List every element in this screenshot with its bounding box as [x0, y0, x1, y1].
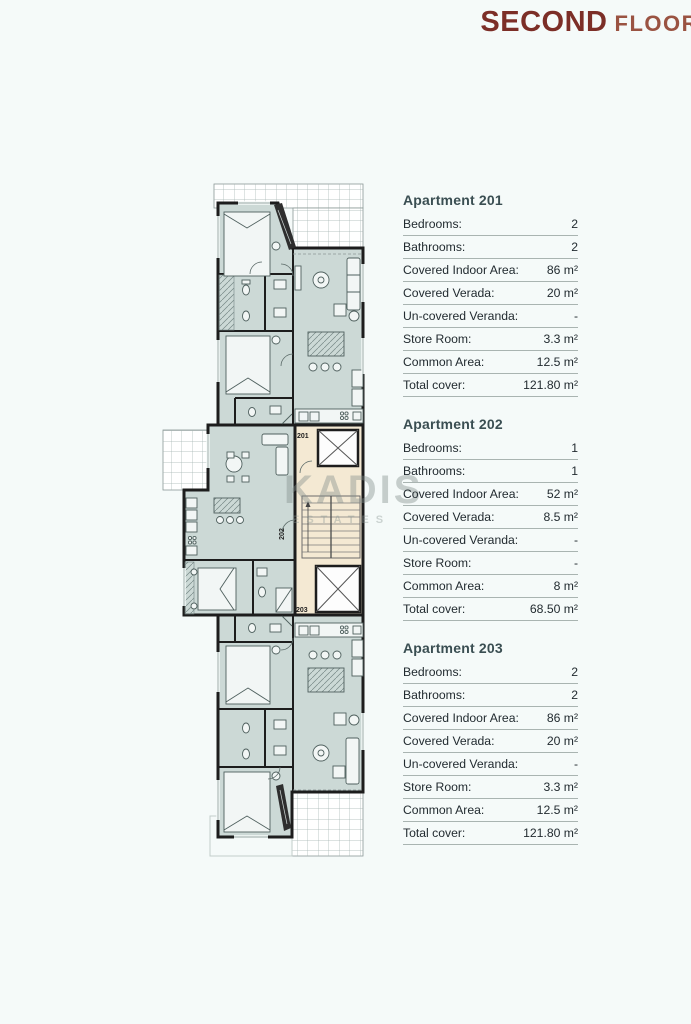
page-title: SECONDFLOOR — [480, 6, 691, 39]
floor-title-primary: SECOND — [480, 6, 607, 38]
table-row: Bedrooms:2 — [403, 213, 578, 236]
spec-value: 2 — [571, 240, 578, 254]
spec-value: 12.5 m² — [537, 355, 578, 369]
spec-label: Store Room: — [403, 332, 471, 346]
table-row: Total cover:68.50 m² — [403, 598, 578, 621]
spec-value: 2 — [571, 217, 578, 231]
floor-plan-page: SECONDFLOOR — [0, 0, 691, 1024]
table-row: Bathrooms:1 — [403, 460, 578, 483]
spec-label: Covered Indoor Area: — [403, 487, 519, 501]
spec-value: 2 — [571, 688, 578, 702]
table-row: Covered Verada:20 m² — [403, 282, 578, 305]
table-row: Total cover:121.80 m² — [403, 822, 578, 845]
spec-value: 3.3 m² — [543, 332, 578, 346]
table-row: Covered Indoor Area:86 m² — [403, 707, 578, 730]
spec-value: - — [574, 533, 578, 547]
spec-value: 86 m² — [547, 711, 578, 725]
spec-value: 68.50 m² — [530, 602, 578, 616]
wardrobe-hatch-201 — [219, 275, 234, 330]
spec-value: 8 m² — [554, 579, 578, 593]
table-row: Covered Verada:20 m² — [403, 730, 578, 753]
spec-label: Covered Indoor Area: — [403, 711, 519, 725]
apartment-spec-tables: Apartment 201 Bedrooms:2 Bathrooms:2 Cov… — [403, 192, 578, 864]
table-row: Bedrooms:1 — [403, 437, 578, 460]
spec-label: Common Area: — [403, 355, 484, 369]
elevator-shaft-1 — [318, 430, 358, 466]
elevator-shaft-2 — [316, 566, 360, 612]
floor-title-secondary: FLOOR — [615, 11, 691, 36]
table-row: Store Room:3.3 m² — [403, 776, 578, 799]
spec-label: Bathrooms: — [403, 688, 465, 702]
veranda-grid-left — [163, 430, 208, 490]
apartment-202-table: Apartment 202 Bedrooms:1 Bathrooms:1 Cov… — [403, 416, 578, 621]
stairwell — [302, 496, 360, 558]
table-row: Total cover:121.80 m² — [403, 374, 578, 397]
table-row: Covered Verada:8.5 m² — [403, 506, 578, 529]
table-row: Un-covered Veranda:- — [403, 305, 578, 328]
apartment-202-heading: Apartment 202 — [403, 416, 578, 432]
spec-value: 20 m² — [547, 286, 578, 300]
spec-label: Covered Verada: — [403, 286, 494, 300]
spec-label: Un-covered Veranda: — [403, 757, 518, 771]
spec-value: 12.5 m² — [537, 803, 578, 817]
spec-label: Bathrooms: — [403, 240, 465, 254]
table-row: Bathrooms:2 — [403, 236, 578, 259]
spec-label: Total cover: — [403, 826, 465, 840]
spec-value: 121.80 m² — [523, 826, 578, 840]
spec-value: 121.80 m² — [523, 378, 578, 392]
spec-label: Bedrooms: — [403, 217, 462, 231]
spec-value: - — [574, 309, 578, 323]
spec-label: Bathrooms: — [403, 464, 465, 478]
unit-label-202: 202 — [279, 528, 286, 540]
apartment-201-table: Apartment 201 Bedrooms:2 Bathrooms:2 Cov… — [403, 192, 578, 397]
spec-label: Common Area: — [403, 579, 484, 593]
spec-value: 52 m² — [547, 487, 578, 501]
spec-label: Store Room: — [403, 556, 471, 570]
table-row: Covered Indoor Area:52 m² — [403, 483, 578, 506]
spec-label: Store Room: — [403, 780, 471, 794]
table-row: Un-covered Veranda:- — [403, 753, 578, 776]
unit-label-203: 203 — [296, 607, 308, 614]
table-row: Common Area:12.5 m² — [403, 351, 578, 374]
table-row: Store Room:3.3 m² — [403, 328, 578, 351]
table-row: Covered Indoor Area:86 m² — [403, 259, 578, 282]
spec-label: Bedrooms: — [403, 441, 462, 455]
spec-value: 1 — [571, 464, 578, 478]
table-row: Bathrooms:2 — [403, 684, 578, 707]
spec-value: 20 m² — [547, 734, 578, 748]
spec-value: - — [574, 556, 578, 570]
spec-label: Common Area: — [403, 803, 484, 817]
spec-label: Total cover: — [403, 602, 465, 616]
spec-label: Total cover: — [403, 378, 465, 392]
spec-value: - — [574, 757, 578, 771]
spec-value: 1 — [571, 441, 578, 455]
unit-label-201: 201 — [297, 433, 309, 440]
spec-label: Covered Verada: — [403, 734, 494, 748]
table-row: Bedrooms:2 — [403, 661, 578, 684]
spec-label: Covered Indoor Area: — [403, 263, 519, 277]
table-row: Un-covered Veranda:- — [403, 529, 578, 552]
spec-value: 86 m² — [547, 263, 578, 277]
table-row: Common Area:8 m² — [403, 575, 578, 598]
spec-label: Bedrooms: — [403, 665, 462, 679]
apartment-203-table: Apartment 203 Bedrooms:2 Bathrooms:2 Cov… — [403, 640, 578, 845]
spec-label: Un-covered Veranda: — [403, 533, 518, 547]
table-row: Store Room:- — [403, 552, 578, 575]
spec-label: Covered Verada: — [403, 510, 494, 524]
table-row: Common Area:12.5 m² — [403, 799, 578, 822]
spec-label: Un-covered Veranda: — [403, 309, 518, 323]
spec-value: 2 — [571, 665, 578, 679]
spec-value: 8.5 m² — [543, 510, 578, 524]
floor-plan-drawing: 201 202 203 — [150, 168, 375, 878]
spec-value: 3.3 m² — [543, 780, 578, 794]
apartment-201-heading: Apartment 201 — [403, 192, 578, 208]
apartment-203-heading: Apartment 203 — [403, 640, 578, 656]
